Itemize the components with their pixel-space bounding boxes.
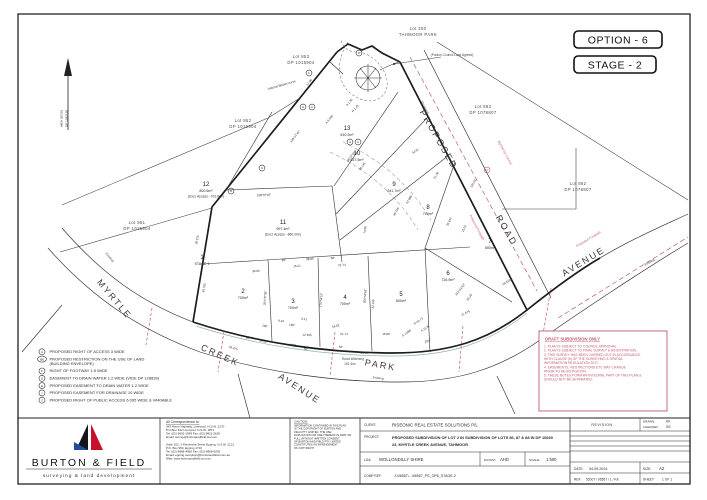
dimension-label: 9.41 — [301, 317, 308, 322]
correspondence-heading: All Correspondence to: — [166, 420, 200, 424]
easement-mark-letter: H — [311, 105, 313, 109]
company-name: BURTON & FIELD — [32, 457, 147, 469]
context-lot-name: Lot 853 — [293, 54, 310, 59]
dimension-label: 32.195 — [371, 299, 376, 309]
lot-number: 11 — [280, 220, 287, 226]
legend-text: PROPOSED EASEMENT FOR DRAINAGE 10 WIDE — [50, 390, 145, 395]
easement-mark-letter: G — [302, 105, 304, 109]
lot-area-excl: (Excl. Access - 860.2m²) — [265, 233, 301, 237]
client-value: RISEONIC REAL ESTATE SOLUTIONS P/L — [392, 423, 478, 428]
company-tagline: surveying & land development — [43, 473, 135, 479]
plan-note: 192.4m² — [344, 362, 356, 366]
lot-area: 841.7m² — [387, 189, 401, 193]
legend-symbol: F — [41, 369, 43, 373]
stage-badge-label: STAGE - 2 — [588, 60, 642, 72]
lot-area: 810.2m² — [340, 133, 354, 137]
north-arrow-label: DP 1292192 — [65, 110, 69, 127]
datum-label: DATUM: — [484, 458, 496, 462]
legend-symbol: H — [41, 384, 43, 388]
lot-area: 997.4m² — [276, 227, 290, 231]
context-lot-name: Lot 892 — [570, 181, 587, 186]
compref-label: COMP REF: — [364, 474, 382, 478]
ref-label: REF: — [574, 478, 582, 482]
context-lot-dp: DP 1078807 — [564, 187, 591, 192]
lot-area: 726.9m² — [441, 278, 455, 282]
project-value: PROPOSED SUBDIVISION OF LOT 2 IN SUBDIVI… — [392, 435, 554, 440]
sheet-label: SHEET — [643, 478, 654, 482]
lot-area: 700m² — [288, 306, 299, 310]
dimension-label: 38.95 — [306, 257, 314, 261]
project-value: 23, MYRTLE CREEK AVENUE, TAHMOOR — [392, 442, 468, 447]
dimension-label: 8.94 — [278, 319, 285, 324]
legend-text: PROPOSED RIGHT OF PUBLIC ACCESS 6.095 WI… — [50, 397, 173, 402]
option-badge-label: OPTION - 6 — [588, 35, 648, 47]
dimension-label: 36.06 — [252, 269, 260, 274]
lot-area: 700m² — [238, 296, 249, 300]
lot-area: 800m² — [485, 246, 496, 250]
lot-number: 13 — [344, 126, 351, 132]
easement-mark-letter: G — [261, 166, 263, 170]
context-lot-name: Lot 893 — [475, 104, 492, 109]
lot-area: 700m² — [423, 212, 434, 216]
context-lot-dp: TAHMOOR PARK — [399, 32, 437, 37]
project-label: PROJECT: — [364, 435, 380, 439]
easement-mark-letter: G — [349, 140, 351, 144]
scale-value: 1:500 — [546, 457, 557, 462]
context-lot-dp: DP 1015904 — [287, 60, 314, 65]
legend-text: RIGHT OF FOOTWAY 1.5 WIDE — [50, 368, 108, 373]
plan-note: (Portion Council Land Agreed) — [431, 53, 474, 57]
ref-value: 52007 / 06557 / 1 / KK — [586, 478, 620, 482]
dimension-label: 138°07'45" — [257, 193, 272, 198]
dimension-label: 55.45 — [360, 351, 368, 355]
draft-title: DRAFT SUBDIVISION ONLY — [545, 337, 600, 342]
size-value: A2 — [659, 466, 665, 471]
compref-value: J:\06557\...\06557_PS_OP6_STAGE-2 — [394, 474, 456, 478]
legend-symbol: Z — [41, 398, 43, 402]
caution-heading: CAUTION: — [294, 420, 308, 424]
drawing-sheet: OPTION - 6STAGE - 2MGA (2020)DP 1292192L… — [0, 0, 707, 500]
date-value: 04.09.2024 — [589, 467, 607, 471]
datum-value: AHD — [500, 457, 509, 462]
legend-text: PROPOSED EASEMENT TO DRAIN WATER 1.2 WID… — [50, 383, 149, 388]
caution-line: OF COPYRIGHT — [294, 446, 314, 450]
lot-area: STAGE 1 — [195, 262, 210, 266]
north-arrow-label: MGA (2020) — [60, 110, 64, 127]
legend-text: (BUILDING ENVELOPE) — [50, 361, 95, 366]
context-lot-name: Lot 851 — [129, 220, 146, 225]
client-label: CLIENT: — [364, 423, 376, 427]
legend-symbol: BE — [40, 357, 44, 361]
easement-mark-letter: H — [357, 140, 359, 144]
lot-area: 700m² — [340, 302, 351, 306]
dimension-label: 15.89 — [382, 332, 390, 336]
checked-value: SS — [666, 425, 671, 429]
address-line: Email: survey@burtonandfield.com.au — [166, 435, 217, 439]
drawn-value: KK — [666, 420, 671, 424]
legend-text: PROPOSED RIGHT OF ACCESS 3 WIDE — [50, 349, 125, 354]
lga-value: WOLLONDILLY SHIRE — [379, 457, 424, 462]
dimension-label: 21.74 — [338, 263, 346, 267]
dimension-label: 21.74 — [340, 332, 348, 336]
dimension-label: 12.335 — [302, 333, 312, 337]
address-line: Web: www.burtonandfield.com.au — [166, 456, 211, 460]
draft-note-line: SHOULD NOT BE SEPARATED. — [544, 378, 593, 382]
lot-area: 800m² — [396, 299, 407, 303]
lga-label: LGA: — [364, 458, 371, 462]
context-lot-dp: DP 1078807 — [469, 110, 496, 115]
legend-text: EASEMENT TO DRAIN WATER 1.2 WIDE (VIDE D… — [50, 376, 160, 381]
legend-symbol: A — [41, 350, 43, 354]
sheet-value: 1 OF 1 — [662, 478, 672, 482]
checked-label: CHECKED: — [643, 425, 659, 429]
context-lot-name: Lot 852 — [235, 118, 252, 123]
scale-label: SCALE: — [529, 458, 540, 462]
lot-number: 12 — [203, 182, 210, 188]
revision-header: REVISION — [591, 423, 612, 427]
dimension-label: 269° — [290, 343, 297, 347]
context-lot-dp: DP 1015904 — [123, 226, 150, 231]
lot-area: 800.6m² — [199, 189, 213, 193]
dimension-label: 15.21 — [293, 264, 301, 268]
subdivision-plan-canvas: OPTION - 6STAGE - 2MGA (2020)DP 1292192L… — [0, 0, 707, 500]
date-label: DATE: — [574, 467, 584, 471]
plan-note: Road Widening — [342, 357, 364, 361]
easement-mark-letter: B — [230, 189, 232, 193]
size-label: SIZE: — [643, 467, 651, 471]
context-lot-name: Lot 200 — [410, 26, 427, 31]
context-lot-dp: DP 1015904 — [229, 124, 256, 129]
lot-area-excl: (Excl. Access - 701.9m²) — [188, 195, 224, 199]
drawn-label: DRAWN: — [643, 420, 655, 424]
